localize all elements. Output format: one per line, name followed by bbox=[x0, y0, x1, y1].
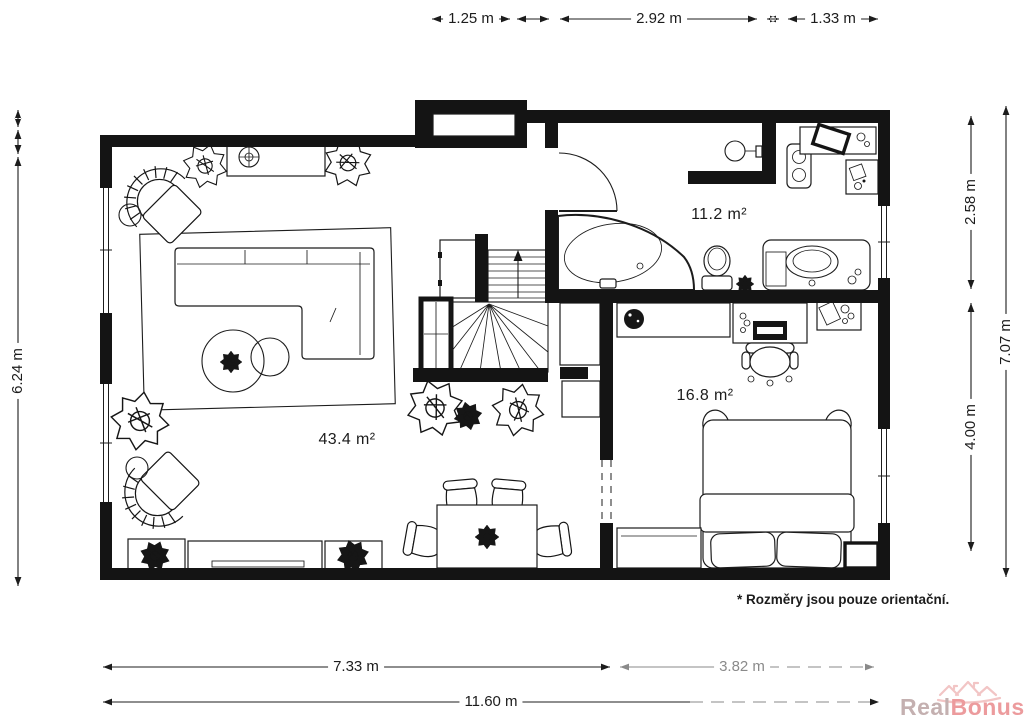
watermark-word1: Real bbox=[900, 694, 951, 720]
side-coffee-table bbox=[251, 338, 289, 376]
pillow bbox=[776, 532, 841, 568]
corner-sofa bbox=[175, 248, 374, 359]
dim-top-1: 1.25 m bbox=[443, 11, 499, 28]
watermark-text: RealBonus.cz bbox=[900, 694, 1024, 721]
living-room-furniture bbox=[107, 132, 600, 575]
window bbox=[100, 384, 112, 502]
toilet-tank bbox=[702, 276, 732, 290]
table-plant bbox=[220, 351, 242, 373]
watermark-word2: Bonus bbox=[951, 694, 1024, 720]
duvet-fold bbox=[700, 494, 854, 532]
floorplan-drawing bbox=[0, 0, 1024, 724]
dresser bbox=[617, 528, 701, 568]
plant bbox=[107, 388, 173, 454]
plant bbox=[482, 374, 554, 446]
window bbox=[878, 206, 890, 278]
window bbox=[878, 429, 890, 523]
dim-bottom-1: 7.33 m bbox=[328, 659, 384, 676]
door-swing-arc bbox=[559, 153, 617, 211]
dim-top-3: 1.33 m bbox=[805, 11, 861, 28]
dim-bottom-total: 11.60 m bbox=[459, 694, 522, 711]
cabinet bbox=[562, 381, 600, 417]
wardrobe bbox=[560, 303, 600, 365]
dim-top-2: 2.92 m bbox=[631, 11, 687, 28]
armchair-bottom-left bbox=[108, 443, 208, 543]
nightstand bbox=[845, 543, 878, 568]
stair-wardrobe bbox=[440, 240, 476, 298]
wall-opening bbox=[602, 460, 611, 523]
vanity bbox=[763, 240, 870, 290]
bedroom-furniture bbox=[617, 300, 878, 568]
centerpiece bbox=[475, 525, 499, 549]
room-area-bedroom: 16.8 m² bbox=[676, 387, 733, 405]
shelf bbox=[560, 367, 588, 379]
stool bbox=[624, 309, 644, 329]
footnote: * Rozměry jsou pouze orientační. bbox=[737, 592, 949, 607]
stair-direction-arrow bbox=[514, 250, 523, 261]
office-chair bbox=[750, 347, 790, 377]
wall-light bbox=[725, 141, 745, 161]
tub-faucet bbox=[600, 279, 616, 288]
dim-left: 6.24 m bbox=[10, 343, 27, 399]
pillow bbox=[710, 532, 775, 568]
room-area-bathroom: 11.2 m² bbox=[691, 206, 747, 224]
dim-right-2: 4.00 m bbox=[963, 399, 980, 455]
entrance-door bbox=[433, 114, 515, 136]
floorplan-image: 1.25 m 2.92 m 1.33 m 6.24 m 2.58 m 4.00 … bbox=[0, 0, 1024, 724]
dim-right-1: 2.58 m bbox=[963, 174, 980, 230]
watermark: RealBonus.cz bbox=[898, 678, 1024, 724]
plant bbox=[178, 139, 231, 192]
room-area-living-room: 43.4 m² bbox=[318, 431, 375, 449]
window bbox=[100, 188, 112, 313]
dim-right-total: 7.07 m bbox=[998, 314, 1015, 370]
dim-bottom-2: 3.82 m bbox=[714, 659, 770, 676]
bathtub bbox=[558, 215, 694, 290]
